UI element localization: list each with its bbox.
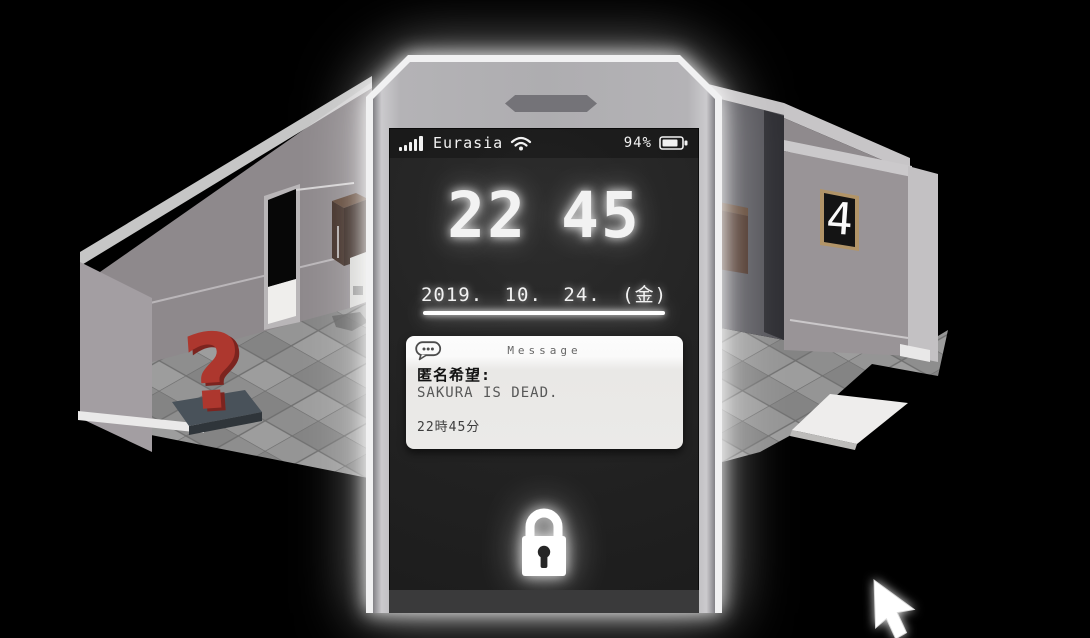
cursor-arrow-icon (872, 578, 924, 638)
lockscreen-clock: 2245 (389, 185, 699, 247)
statue-glyph: ? (179, 309, 248, 435)
glow-divider (423, 311, 665, 315)
room-sign-number: 4 (825, 193, 855, 246)
doorway-opening (268, 189, 296, 287)
sign-wall-face (784, 151, 912, 356)
small-white-appliance (350, 252, 366, 308)
message-notification[interactable]: Message 匿名希望: SAKURA IS DEAD. 22時45分 (406, 336, 683, 449)
padlock-icon[interactable] (512, 505, 576, 579)
notification-sender: 匿名希望: (417, 364, 491, 385)
status-bar: Eurasia 94% (389, 128, 699, 158)
speaker-slot-icon (505, 95, 597, 112)
notification-app-name: Message (406, 344, 683, 357)
phone-body: Eurasia 94% 2245 2 (366, 55, 722, 613)
room-sign: 4 (820, 189, 859, 251)
phone-lock-screen[interactable]: Eurasia 94% 2245 2 (389, 128, 699, 613)
right-corridor: 4 (700, 82, 948, 468)
lockscreen-date: 2019. 10. 24. (金) (389, 280, 699, 307)
clock-hours: 22 (447, 179, 527, 252)
right-interior-dark (764, 110, 784, 340)
battery-icon (659, 136, 689, 150)
notification-message: SAKURA IS DEAD. (417, 385, 558, 401)
screen-footer-strip (389, 590, 699, 613)
wall-column (908, 166, 938, 362)
signal-bars-icon (399, 136, 426, 151)
wifi-icon (510, 135, 532, 151)
carrier-label: Eurasia (433, 134, 503, 152)
clock-minutes: 45 (561, 179, 641, 252)
notification-time: 22時45分 (417, 416, 480, 435)
battery-percent-label: 94% (624, 135, 652, 151)
phone: Eurasia 94% 2245 2 (366, 55, 722, 613)
